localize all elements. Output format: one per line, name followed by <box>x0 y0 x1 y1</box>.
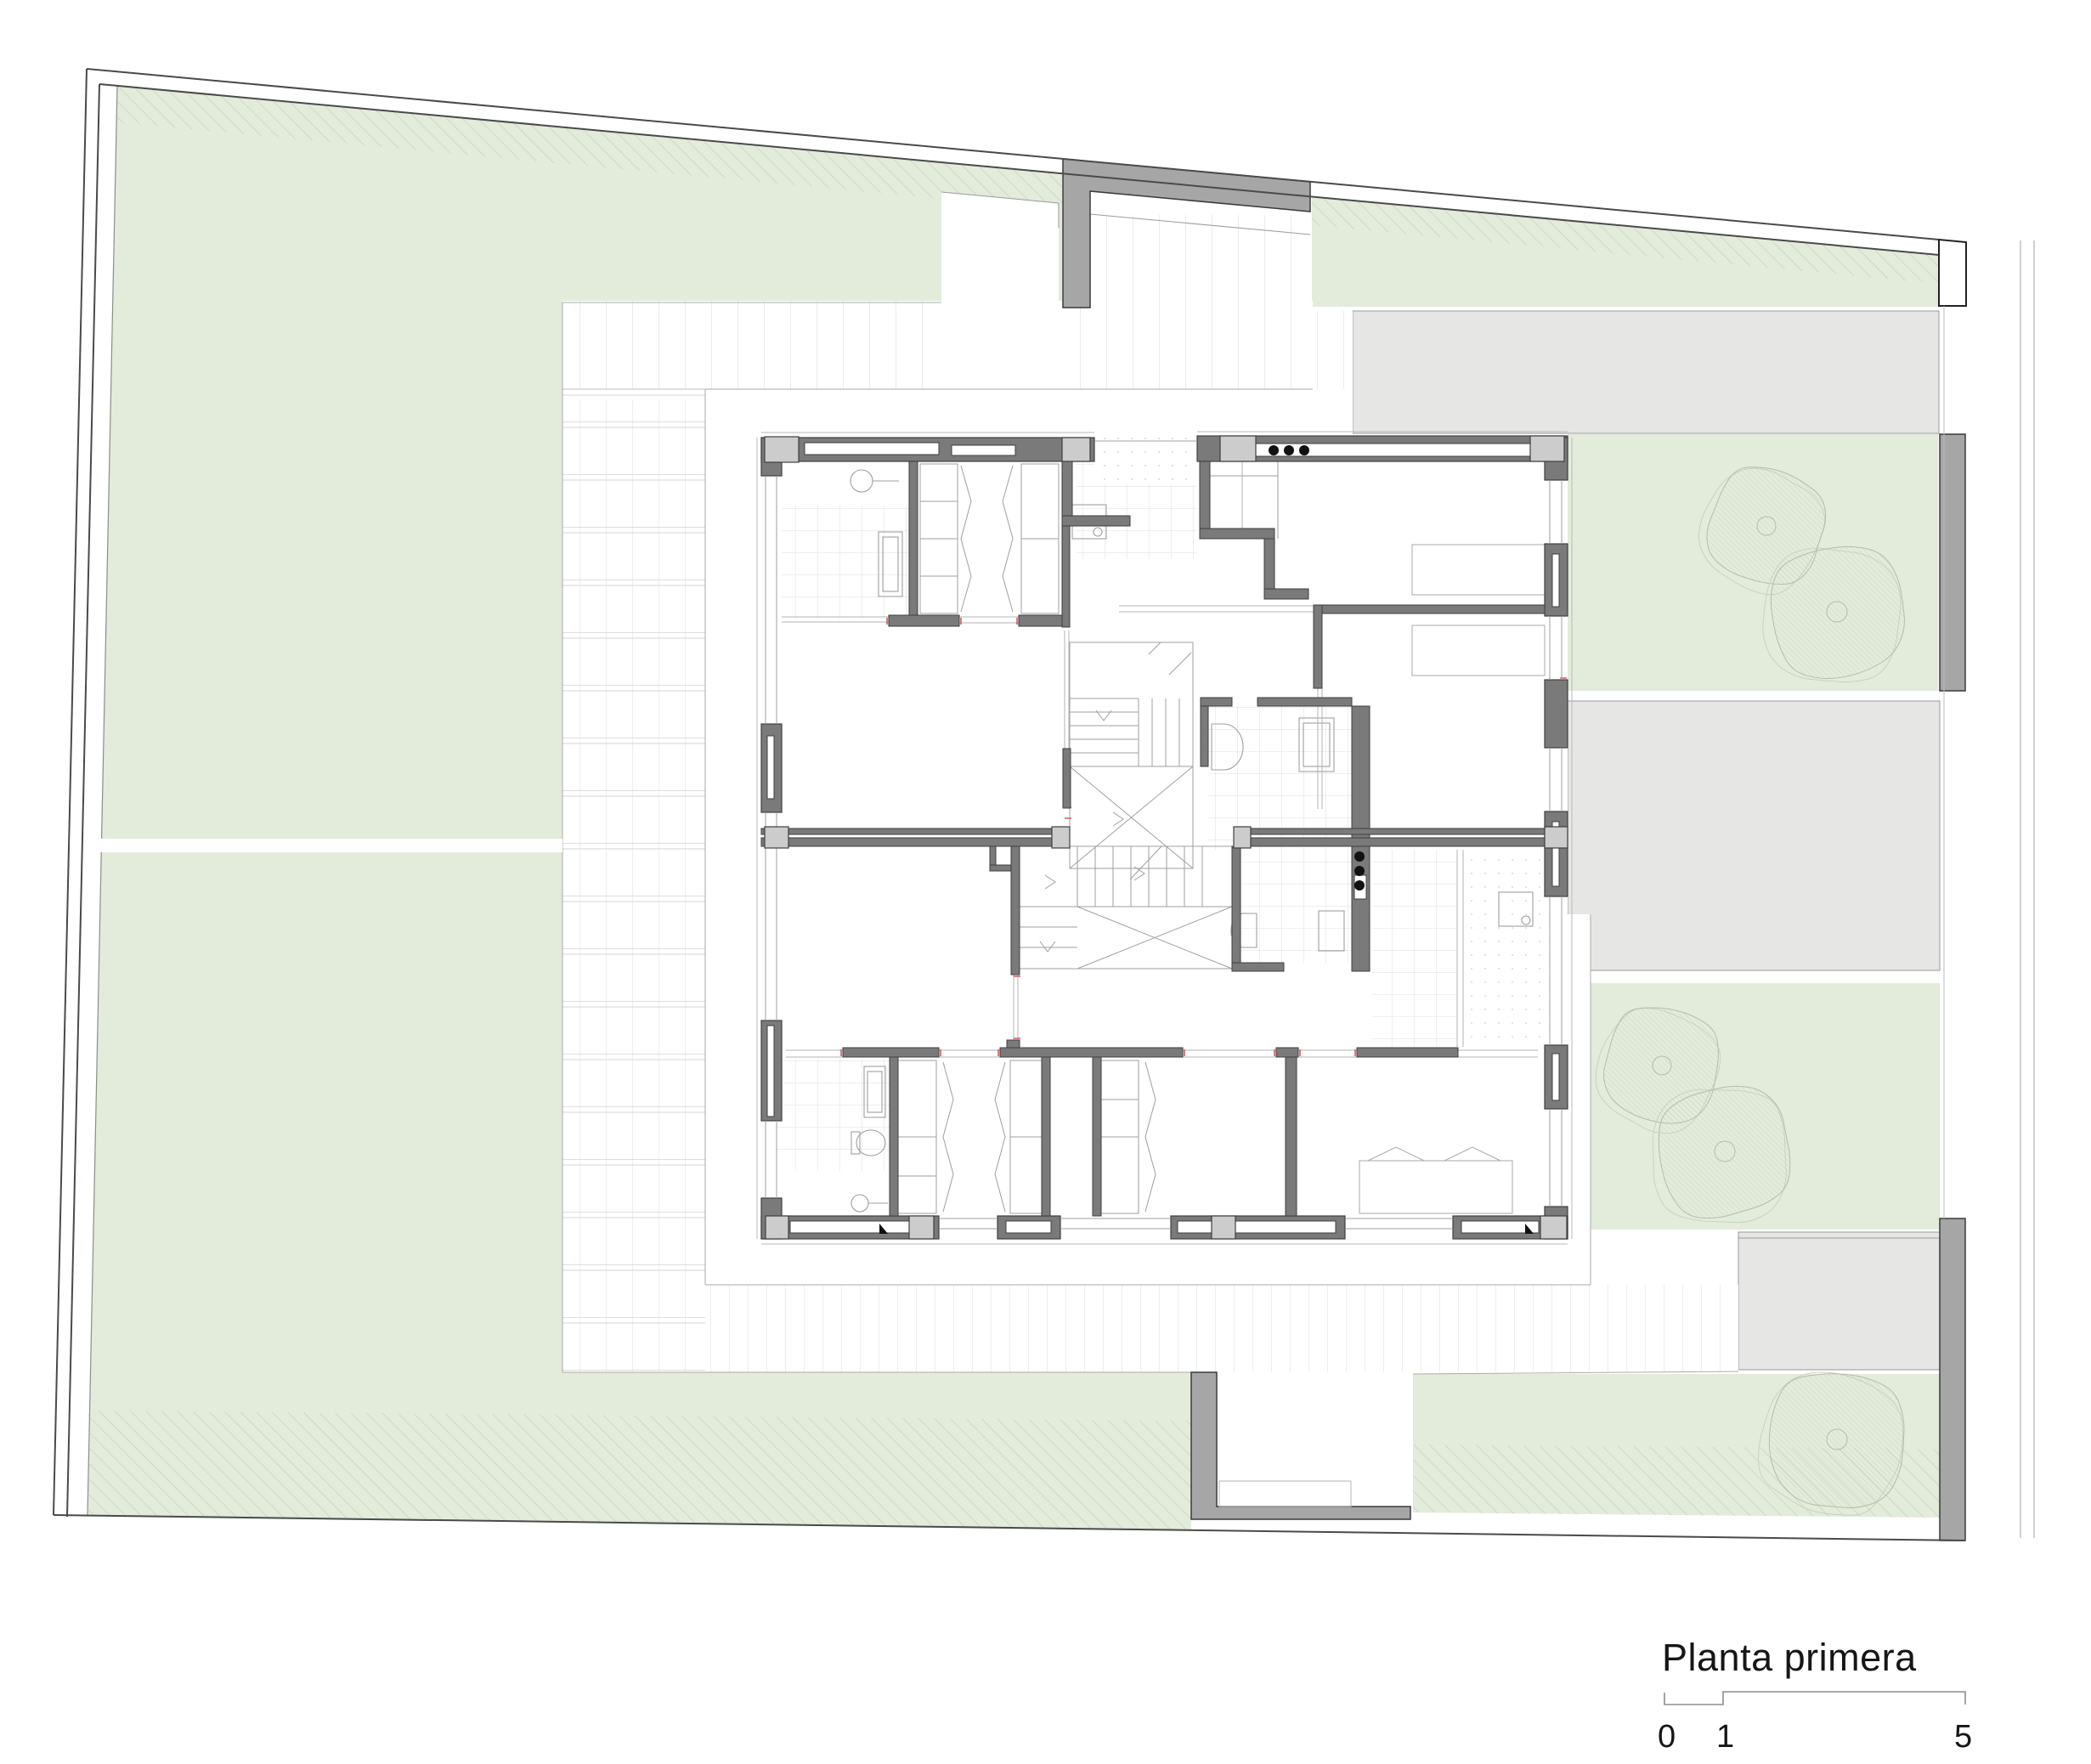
svg-text:0: 0 <box>1658 1719 1676 1755</box>
svg-text:1: 1 <box>1716 1719 1734 1755</box>
svg-text:5: 5 <box>1954 1719 1972 1755</box>
svg-text:Planta primera: Planta primera <box>1662 1636 1917 1679</box>
